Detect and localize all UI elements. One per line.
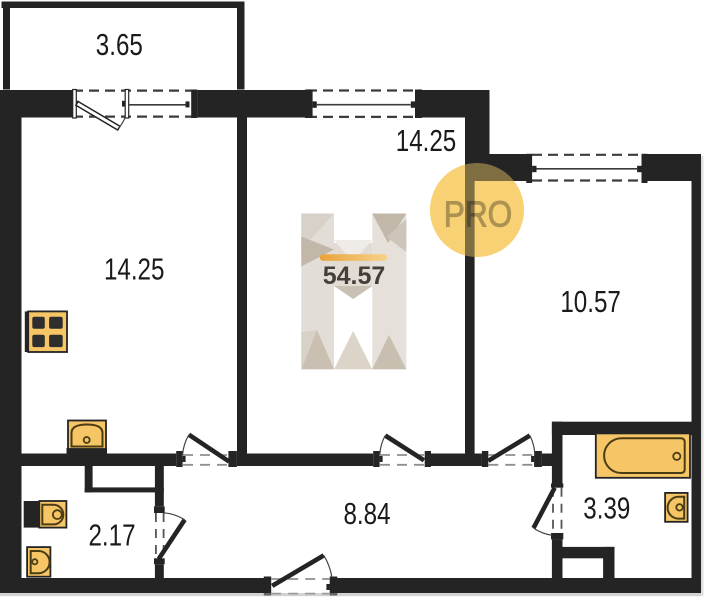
svg-text:14.25: 14.25: [104, 252, 164, 287]
svg-text:10.57: 10.57: [560, 284, 620, 319]
svg-text:14.25: 14.25: [396, 123, 456, 158]
svg-text:2.17: 2.17: [88, 517, 135, 552]
svg-text:8.84: 8.84: [343, 496, 390, 531]
svg-text:PRO: PRO: [444, 195, 513, 235]
svg-text:54.57: 54.57: [323, 262, 386, 290]
svg-text:3.39: 3.39: [583, 491, 630, 526]
svg-text:3.65: 3.65: [96, 27, 143, 62]
